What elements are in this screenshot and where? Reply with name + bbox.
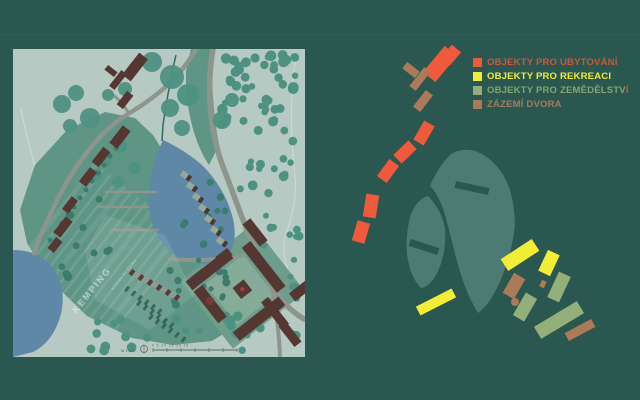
- tree-dot: [220, 293, 226, 299]
- diagram-building-orange: [363, 194, 379, 219]
- legend-swatch-icon: [473, 86, 482, 95]
- tree-dot: [287, 159, 293, 165]
- tree-dot: [268, 117, 278, 127]
- tree-blob: [63, 119, 77, 133]
- diagram-building-brown: [402, 62, 420, 78]
- tree-dot: [278, 50, 288, 60]
- tree-blob: [129, 162, 141, 174]
- tree-dot: [276, 104, 285, 113]
- tree-dot: [280, 127, 288, 135]
- tree-dot: [221, 208, 228, 215]
- tree-dot: [117, 316, 125, 324]
- diagram-building-lgreen: [547, 272, 571, 303]
- tree-dot: [292, 73, 298, 79]
- tree-blob: [177, 84, 199, 106]
- diagram-building-lgreen: [534, 301, 584, 339]
- legend-swatch-icon: [473, 72, 482, 81]
- tree-dot: [249, 83, 256, 90]
- tree-dot: [222, 279, 230, 287]
- tree-dot: [73, 242, 80, 249]
- tree-blob: [174, 120, 190, 136]
- scale-label: M 1:500: [121, 348, 136, 353]
- meadow-fan: [407, 150, 515, 313]
- tree-dot: [143, 333, 151, 341]
- tree-dot: [241, 73, 250, 82]
- legend-swatch-icon: [473, 100, 482, 109]
- diagram-building-brown: [409, 67, 430, 91]
- diagram-building-orange: [441, 45, 461, 66]
- tree-blob: [53, 95, 71, 113]
- tree-blob: [160, 65, 184, 89]
- tree-dot: [234, 62, 243, 71]
- tree-dot: [100, 342, 110, 352]
- diagram-building-lgreen: [513, 292, 537, 321]
- tree-dot: [87, 345, 96, 354]
- tree-dot: [262, 95, 271, 104]
- site-plan-svg: KEMPING VODNÍ PLOCHA M 1:500 0 5 10 15 2…: [13, 49, 305, 357]
- legend-label: OBJEKTY PRO ZEMĚDĚLSTV: [487, 85, 626, 96]
- tree-dot: [248, 181, 258, 191]
- tree-dot: [271, 165, 278, 172]
- tree-dot: [279, 80, 288, 89]
- tree-dot: [200, 240, 207, 247]
- tree-dot: [270, 224, 277, 231]
- tree-dot: [172, 315, 181, 324]
- tree-dot: [91, 250, 98, 257]
- tree-blob: [112, 176, 124, 188]
- tree-dot: [256, 166, 262, 172]
- site-plan-map: KEMPING VODNÍ PLOCHA M 1:500 0 5 10 15 2…: [13, 49, 305, 357]
- tree-dot: [237, 185, 244, 192]
- roadside-tree-dot: [84, 188, 89, 193]
- tree-dot: [110, 320, 117, 327]
- tree-dot: [180, 222, 186, 228]
- tree-dot: [92, 329, 101, 338]
- tree-dot: [262, 106, 269, 113]
- tree-dot: [270, 61, 278, 69]
- tree-dot: [288, 84, 299, 95]
- diagram-building-yellow: [501, 239, 540, 271]
- tree-dot: [196, 327, 203, 334]
- legend-label: ZÁZEMÍ DVORA: [487, 99, 562, 110]
- tree-blob: [213, 111, 231, 129]
- background-seam: [0, 34, 640, 35]
- diagram-building-orange: [377, 159, 399, 183]
- tree-dot: [167, 267, 174, 274]
- legend-swatch-icon: [473, 58, 482, 67]
- fan-slit: [409, 239, 440, 255]
- diagram-building-brown: [413, 90, 433, 112]
- tree-dot: [263, 213, 269, 219]
- diagram-building-brown: [503, 273, 526, 299]
- diagram-dot-brown: [511, 298, 519, 306]
- red-circle-building: [206, 297, 214, 305]
- tree-dot: [246, 163, 254, 171]
- tree-dot: [280, 155, 288, 163]
- diagram-building-orange: [423, 46, 457, 82]
- tree-dot: [176, 288, 182, 294]
- legend-item: OBJEKTY PRO ZEMĚDĚLSTVÍ: [473, 83, 629, 97]
- fan-slit: [455, 181, 490, 195]
- tree-dot: [291, 257, 297, 263]
- tree-dot: [239, 347, 246, 354]
- tree-dot: [174, 277, 181, 284]
- tree-dot: [239, 95, 246, 102]
- tree-dot: [96, 196, 103, 203]
- tree-blob: [161, 99, 179, 117]
- legend-item: OBJEKTY PRO UBYTOVÁNÍ: [473, 55, 629, 69]
- legend-item: ZÁZEMÍ DVORA: [473, 97, 629, 111]
- legend: OBJEKTY PRO UBYTOVÁNÍOBJEKTY PRO REKREAC…: [473, 55, 629, 111]
- tree-blob: [80, 108, 100, 128]
- tree-dot: [209, 286, 214, 291]
- tree-dot: [94, 318, 101, 325]
- tree-dot: [279, 172, 289, 182]
- tree-dot: [59, 263, 66, 270]
- tree-dot: [64, 273, 72, 281]
- tree-dot: [266, 51, 277, 62]
- tree-dot: [214, 208, 220, 214]
- tree-dot: [79, 224, 86, 231]
- diagram-building-brown: [565, 319, 596, 341]
- diagram-building-yellow: [416, 288, 456, 315]
- tree-dot: [217, 193, 224, 200]
- tree-dot: [293, 234, 299, 240]
- tree-dot: [288, 274, 294, 280]
- tree-dot: [196, 258, 201, 263]
- tree-dot: [264, 189, 272, 197]
- tree-blob: [225, 93, 239, 107]
- diagram-building-yellow: [538, 250, 560, 276]
- tree-dot: [254, 126, 263, 135]
- legend-label: OBJEKTY PRO REKREACI: [487, 71, 611, 82]
- tree-dot: [286, 231, 293, 238]
- tree-dot: [121, 332, 130, 341]
- tree-dot: [221, 53, 231, 63]
- tree-blob: [68, 85, 84, 101]
- roadside-tree-dot: [78, 196, 83, 201]
- legend-label: OBJEKTY PRO UBYTOVÁNÍ: [487, 57, 618, 68]
- scale-ticks: 0 5 10 15 20 25: [152, 344, 189, 348]
- presentation-slide: KEMPING VODNÍ PLOCHA M 1:500 0 5 10 15 2…: [0, 0, 640, 400]
- tree-blob: [102, 89, 114, 101]
- legend-item: OBJEKTY PRO REKREACI: [473, 69, 629, 83]
- diagram-building-orange: [393, 140, 416, 163]
- tree-dot: [226, 77, 235, 86]
- tree-dot: [250, 53, 259, 62]
- tree-dot: [182, 327, 189, 334]
- diagram-building-orange: [352, 220, 370, 244]
- tree-dot: [260, 61, 268, 69]
- tree-dot: [240, 117, 248, 125]
- tree-dot: [103, 248, 110, 255]
- legend-label-suffix: Í: [626, 85, 629, 96]
- tree-dot: [289, 137, 298, 146]
- diagram-building-brown: [539, 280, 546, 288]
- tree-dot: [290, 53, 299, 62]
- diagram-building-orange: [413, 120, 434, 145]
- roadside-tree-dot: [48, 238, 53, 243]
- roadside-tree-dot: [102, 163, 107, 168]
- tree-dot: [207, 179, 214, 186]
